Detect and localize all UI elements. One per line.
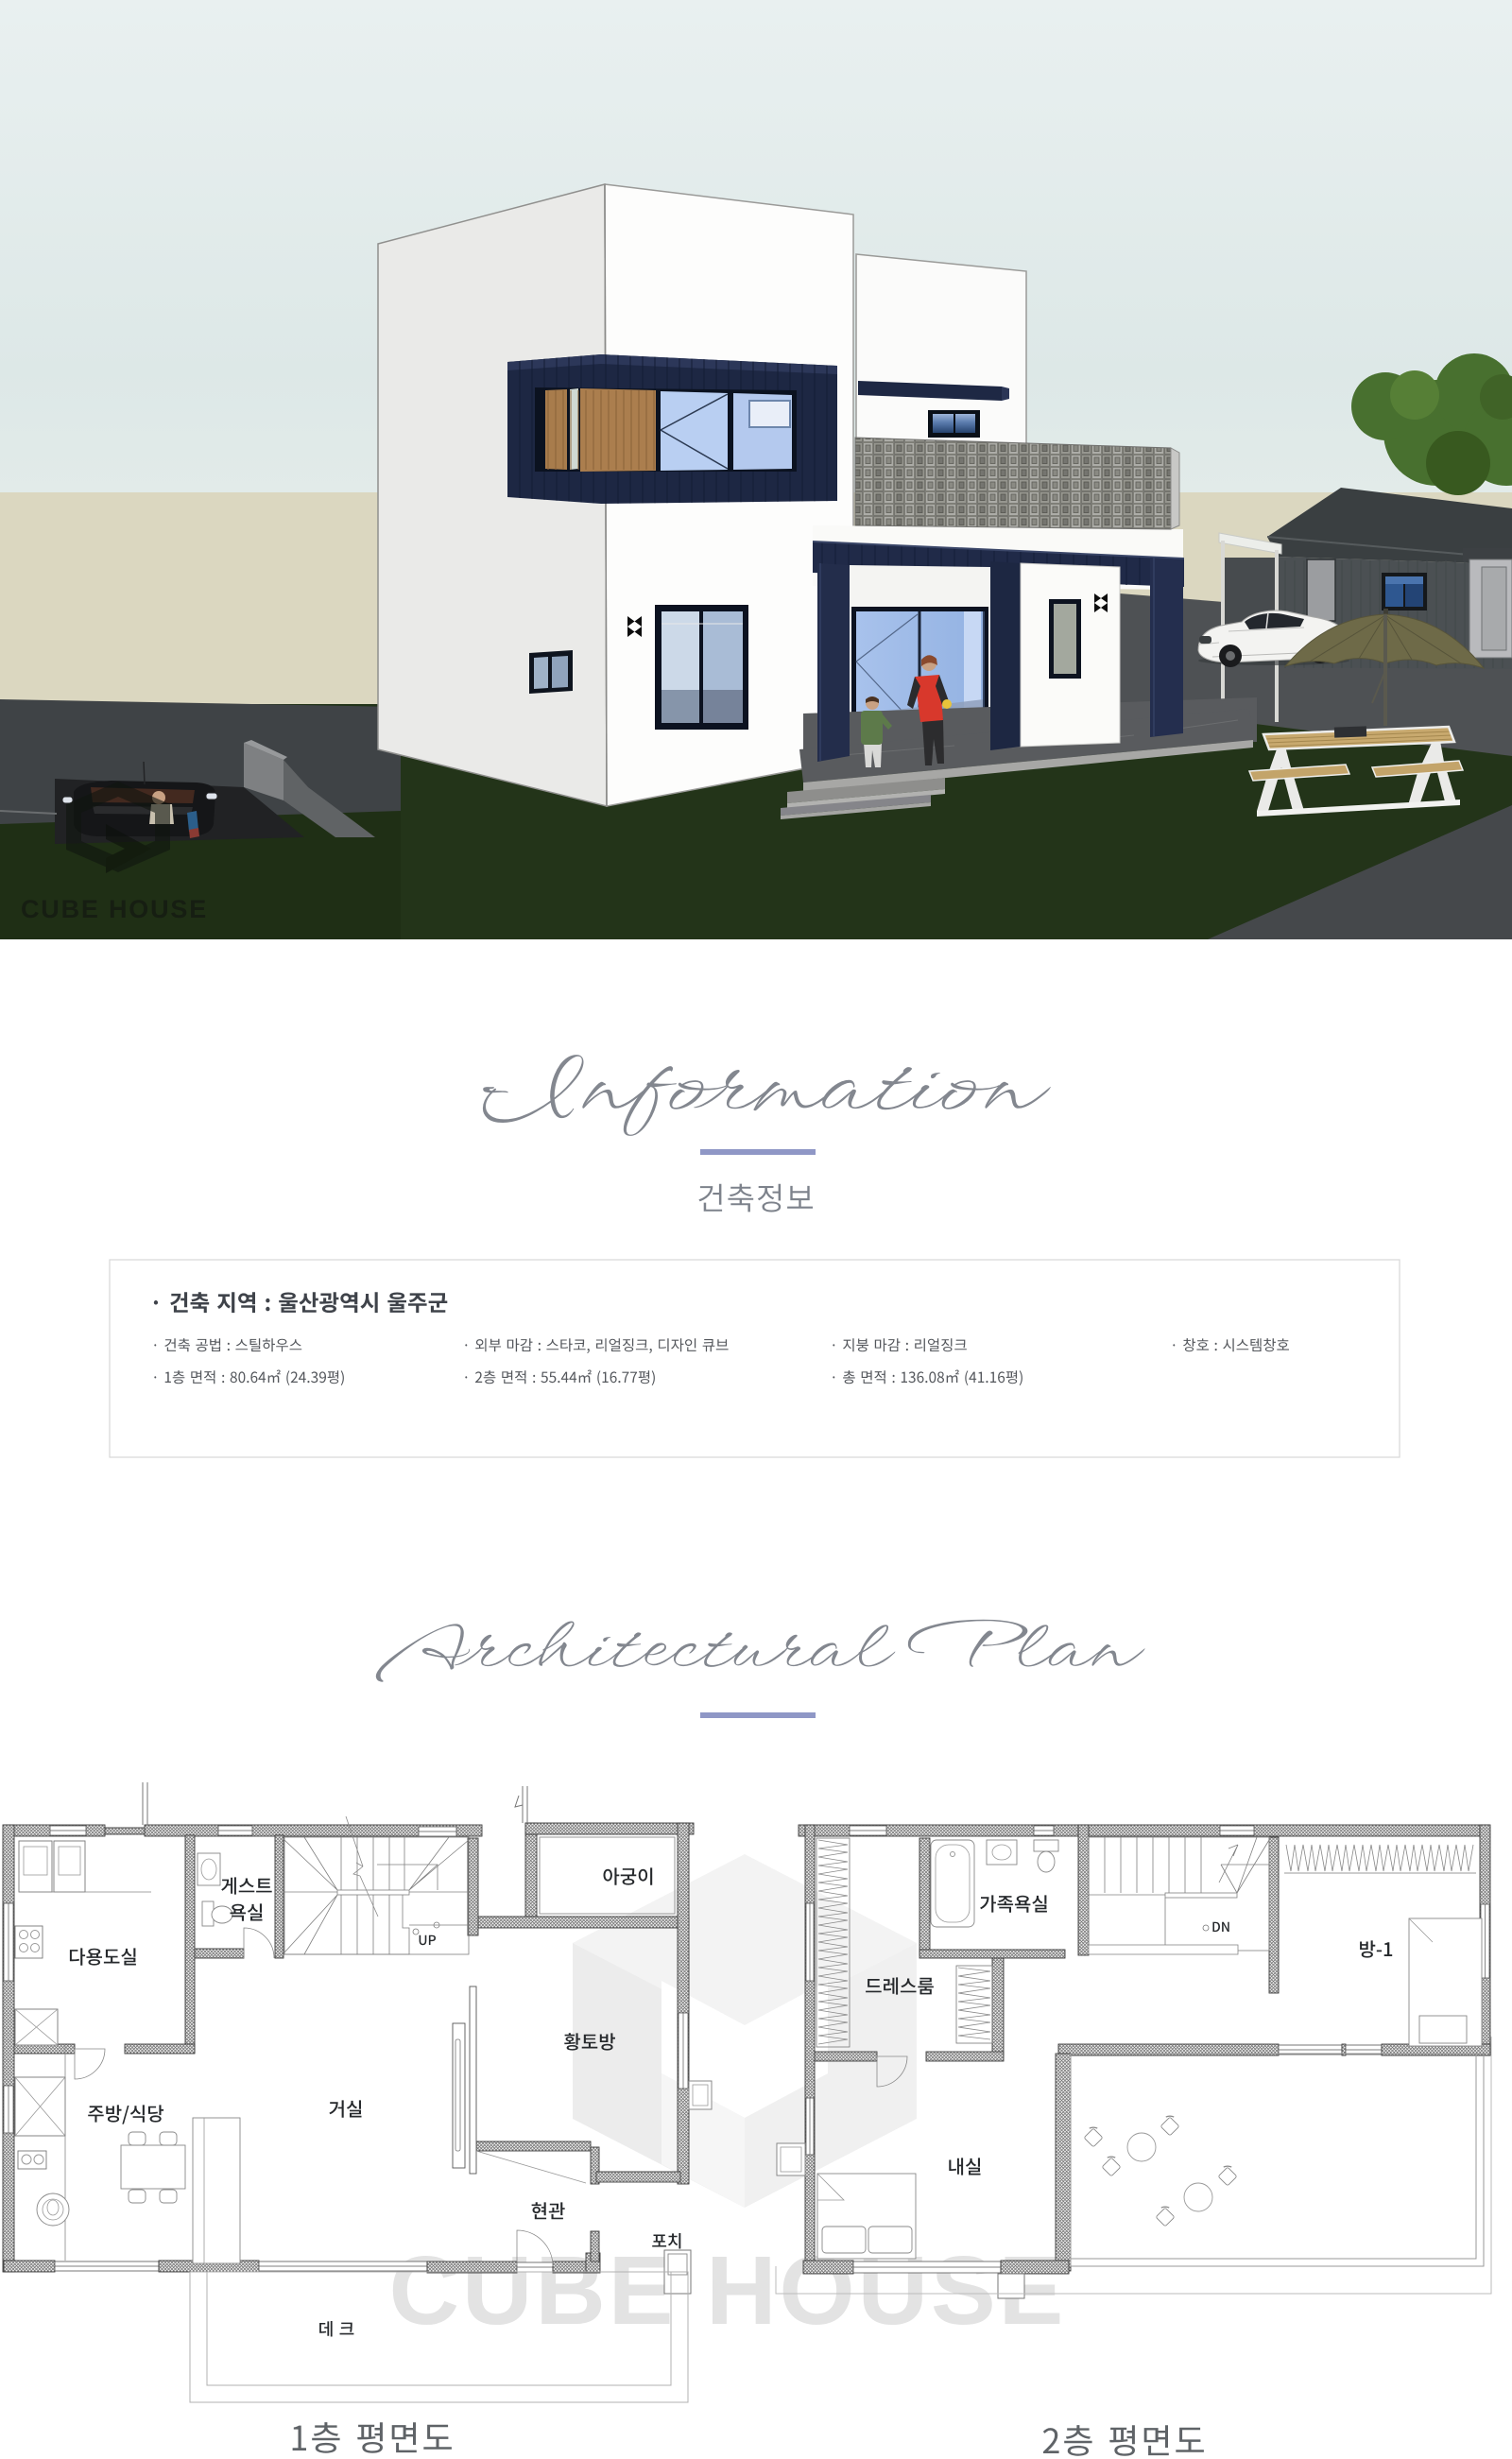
svg-text:CUBE HOUSE: CUBE HOUSE [21, 895, 208, 923]
svg-text:CUBE HOUSE: CUBE HOUSE [389, 2236, 1067, 2345]
